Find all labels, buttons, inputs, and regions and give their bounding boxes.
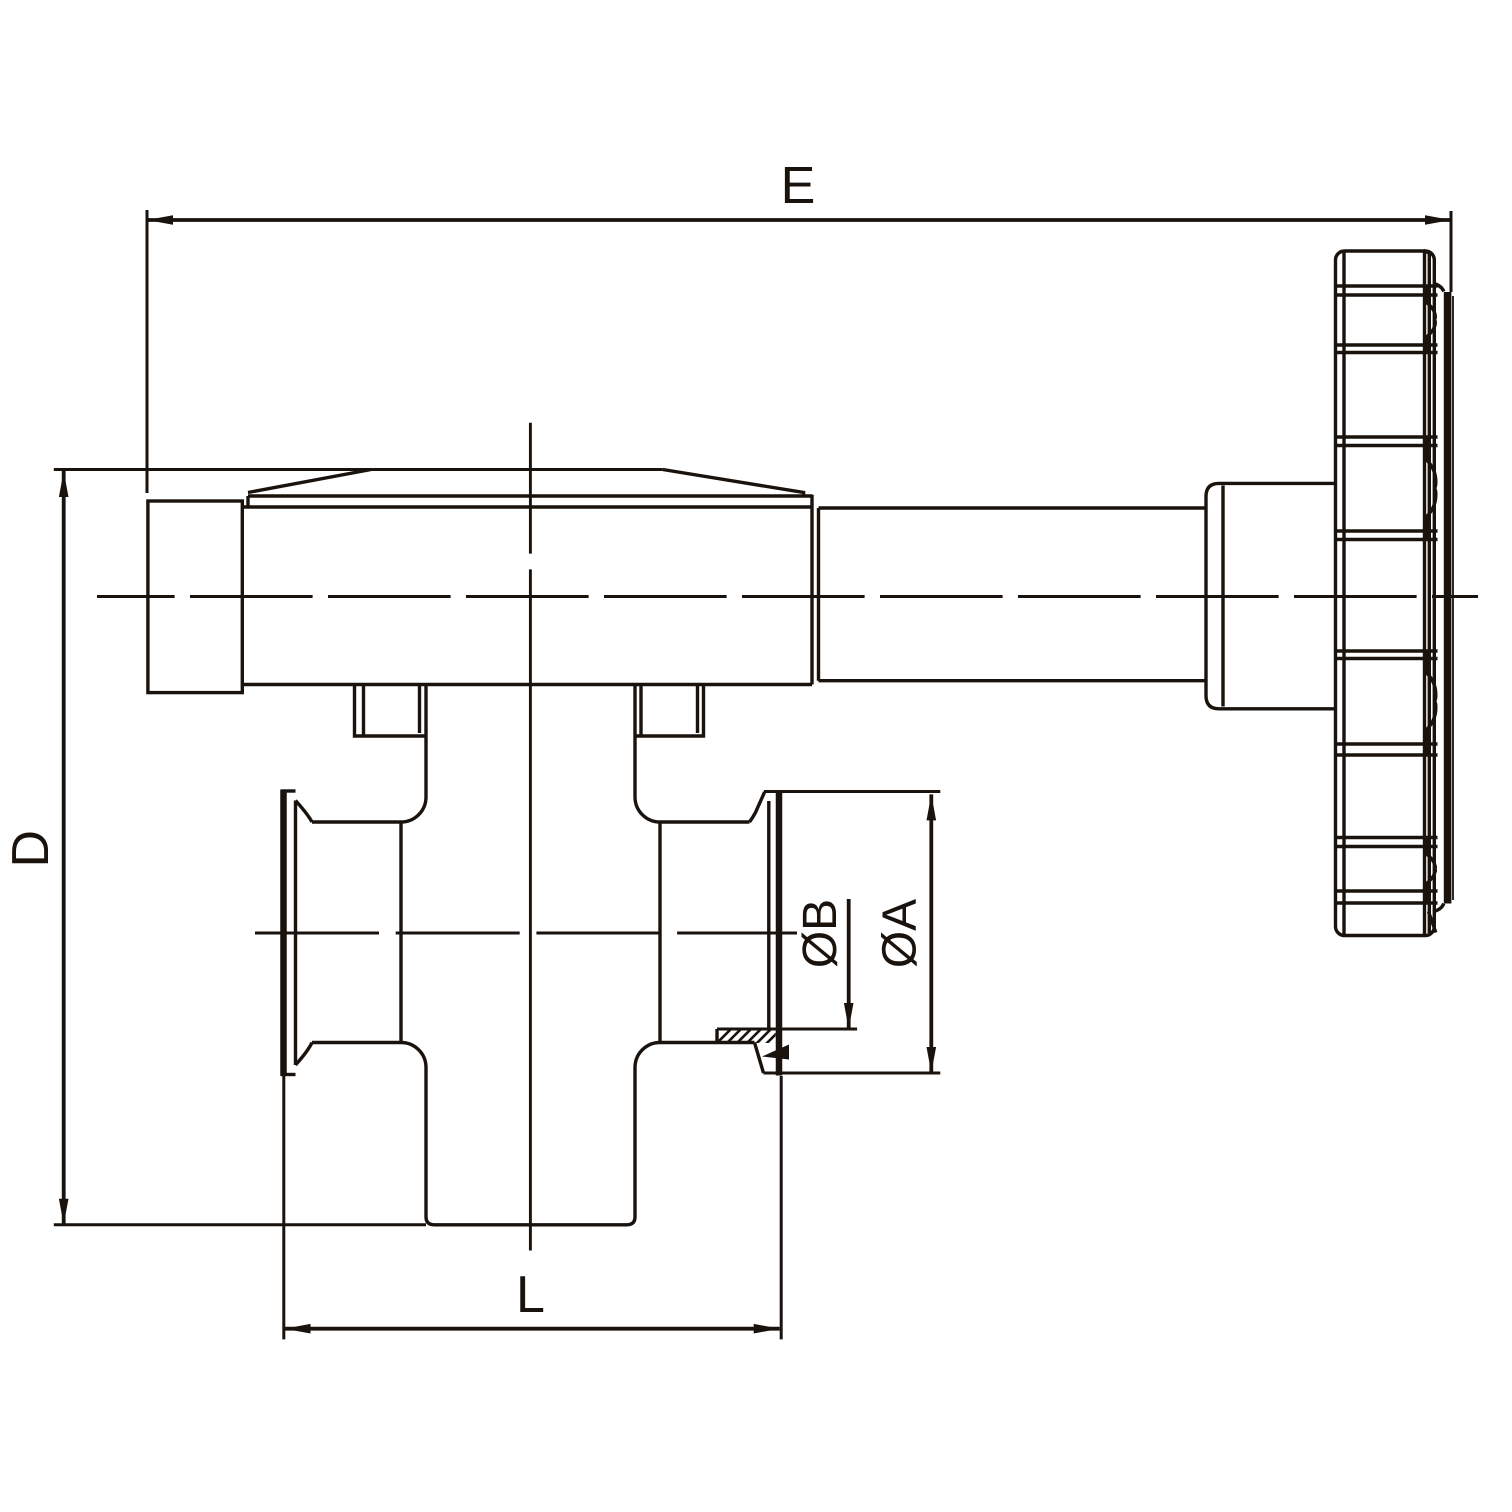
svg-text:D: D [2,830,60,868]
svg-text:ØB: ØB [794,899,847,968]
svg-text:E: E [781,157,816,215]
svg-text:ØA: ØA [874,899,927,968]
svg-text:L: L [516,1266,545,1324]
